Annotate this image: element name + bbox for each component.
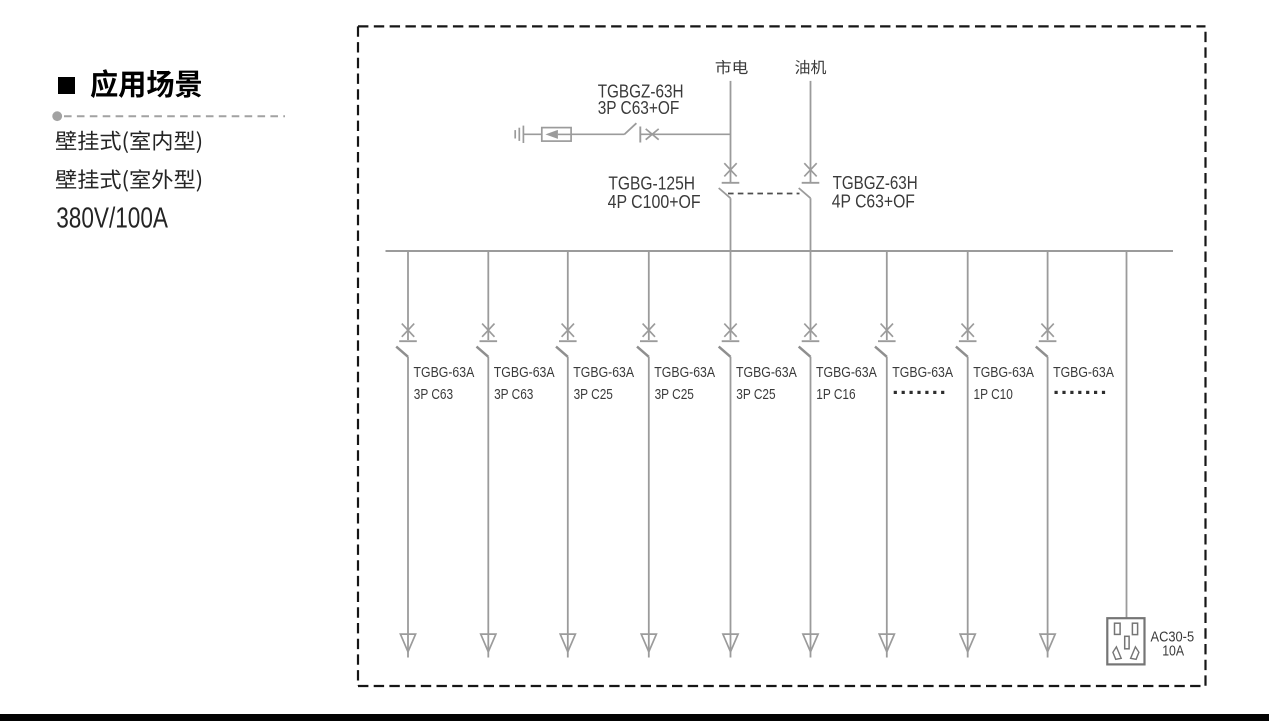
svg-text:3P C63: 3P C63 [494, 387, 533, 403]
svg-text:380V/100A: 380V/100A [56, 202, 168, 234]
svg-text:TGBG-63A: TGBG-63A [1053, 365, 1114, 381]
svg-text:TGBG-63A: TGBG-63A [816, 365, 877, 381]
svg-text:TGBG-63A: TGBG-63A [892, 365, 953, 381]
svg-text:TGBG-63A: TGBG-63A [654, 365, 715, 381]
svg-text:3P C25: 3P C25 [574, 387, 613, 403]
svg-text:TGBG-63A: TGBG-63A [494, 365, 555, 381]
svg-text:TGBG-63A: TGBG-63A [736, 365, 797, 381]
svg-text:TGBGZ-63H: TGBGZ-63H [833, 173, 918, 193]
svg-text:10A: 10A [1162, 643, 1184, 659]
svg-text:TGBG-125H: TGBG-125H [608, 173, 695, 193]
svg-text:TGBG-63A: TGBG-63A [573, 365, 634, 381]
svg-text:3P C63: 3P C63 [414, 387, 453, 403]
svg-text:3P C63+OF: 3P C63+OF [598, 98, 680, 118]
svg-text:4P C63+OF: 4P C63+OF [832, 191, 915, 211]
svg-text:3P C25: 3P C25 [736, 387, 775, 403]
svg-text:3P C25: 3P C25 [655, 387, 694, 403]
svg-text:TGBG-63A: TGBG-63A [973, 365, 1034, 381]
svg-text:1P C16: 1P C16 [816, 387, 855, 403]
svg-text:4P C100+OF: 4P C100+OF [608, 192, 701, 212]
svg-text:1P C10: 1P C10 [974, 387, 1013, 403]
svg-text:TGBG-63A: TGBG-63A [414, 365, 475, 381]
